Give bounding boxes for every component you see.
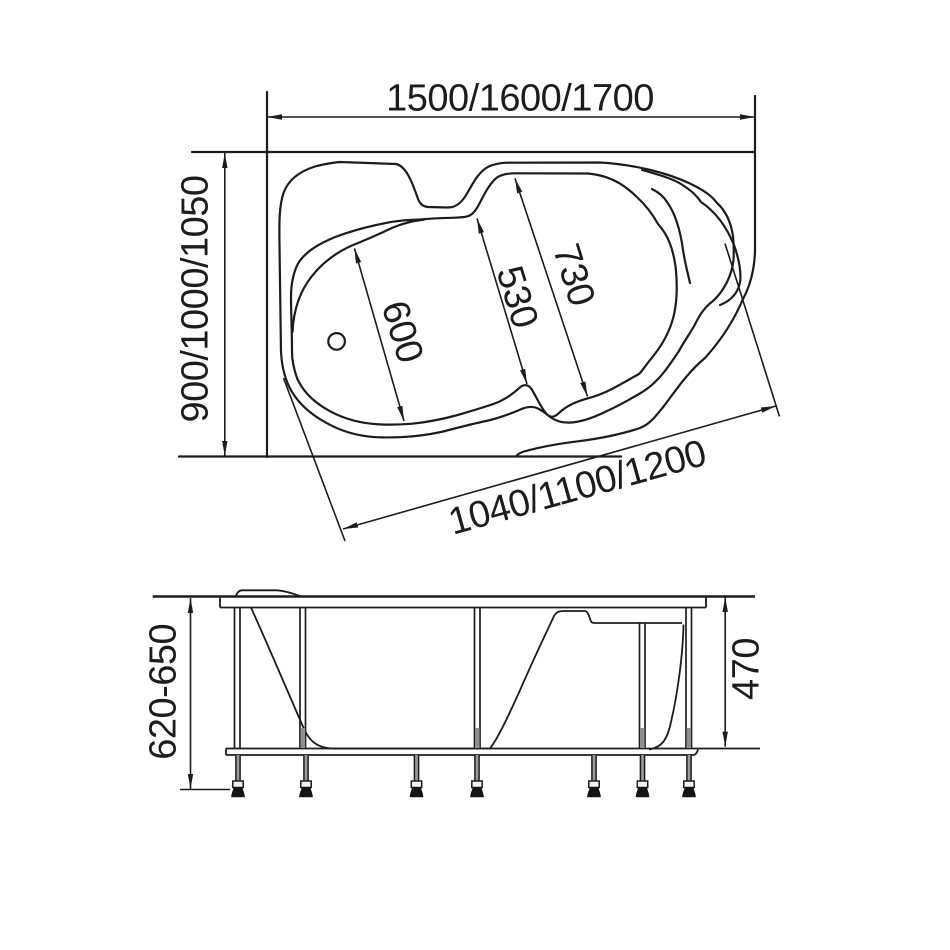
svg-text:470: 470 <box>726 638 768 700</box>
svg-text:620-650: 620-650 <box>143 624 185 760</box>
svg-text:900/1000/1050: 900/1000/1050 <box>175 175 217 422</box>
svg-text:1500/1600/1700: 1500/1600/1700 <box>386 78 654 120</box>
